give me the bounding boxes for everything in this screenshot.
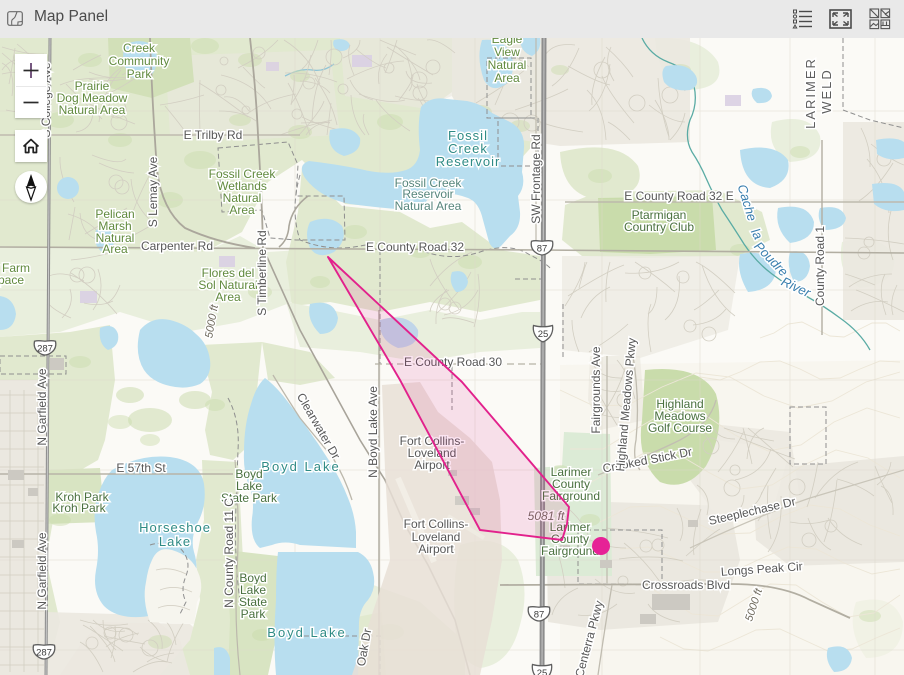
- svg-text:Crossroads Blvd: Crossroads Blvd: [642, 578, 730, 592]
- svg-text:Area: Area: [215, 290, 241, 304]
- svg-text:S Timberline Rd: S Timberline Rd: [255, 230, 269, 315]
- svg-text:87: 87: [534, 610, 545, 621]
- svg-text:LARIMER: LARIMER: [803, 57, 818, 129]
- svg-text:Natural Area: Natural Area: [59, 103, 126, 117]
- svg-text:WELD: WELD: [819, 68, 834, 114]
- svg-text:25: 25: [537, 668, 548, 675]
- svg-text:Lake: Lake: [159, 534, 191, 549]
- svg-text:N County Road 11 C: N County Road 11 C: [222, 498, 236, 608]
- svg-text:Kroh Park: Kroh Park: [52, 501, 106, 515]
- svg-text:pace: pace: [0, 273, 24, 287]
- svg-text:S Lemay Ave: S Lemay Ave: [146, 156, 160, 227]
- svg-text:Fairground: Fairground: [541, 544, 599, 558]
- svg-text:Community: Community: [109, 54, 170, 68]
- svg-text:Airport: Airport: [418, 542, 454, 556]
- svg-text:Golf Course: Golf Course: [648, 421, 712, 435]
- svg-text:Fort Collins-: Fort Collins-: [404, 517, 469, 531]
- svg-text:287: 287: [37, 344, 53, 355]
- svg-text:E County Road 32: E County Road 32: [366, 240, 464, 254]
- svg-text:Carpenter Rd: Carpenter Rd: [141, 239, 213, 253]
- svg-text:Horseshoe: Horseshoe: [139, 520, 211, 535]
- svg-text:287: 287: [36, 648, 52, 659]
- svg-text:87: 87: [537, 244, 548, 255]
- svg-text:N Garfield Ave: N Garfield Ave: [35, 368, 49, 445]
- svg-text:E 57th St: E 57th St: [116, 461, 166, 475]
- svg-text:Natural Area: Natural Area: [395, 199, 462, 213]
- svg-text:Reservoir: Reservoir: [436, 154, 501, 169]
- svg-text:View: View: [494, 45, 520, 59]
- svg-text:Fairgrounds Ave: Fairgrounds Ave: [589, 346, 603, 433]
- svg-text:Area: Area: [229, 203, 255, 217]
- svg-text:Boyd Lake: Boyd Lake: [261, 459, 340, 474]
- svg-text:Creek: Creek: [123, 41, 156, 55]
- svg-text:Boyd Lake: Boyd Lake: [267, 625, 346, 640]
- svg-text:Park: Park: [127, 67, 153, 81]
- svg-text:Country Club: Country Club: [624, 220, 694, 234]
- svg-text:25: 25: [538, 329, 549, 340]
- svg-text:SW Frontage Rd: SW Frontage Rd: [529, 134, 543, 223]
- svg-text:County Road 1: County Road 1: [813, 226, 827, 306]
- svg-text:N Garfield Ave: N Garfield Ave: [35, 532, 49, 609]
- svg-text:Park: Park: [241, 607, 267, 621]
- svg-text:E County Road 32 E: E County Road 32 E: [624, 189, 733, 203]
- svg-text:N Boyd Lake Ave: N Boyd Lake Ave: [366, 386, 380, 478]
- svg-text:Area: Area: [102, 242, 128, 256]
- svg-text:Area: Area: [494, 71, 520, 85]
- svg-text:E Trilby Rd: E Trilby Rd: [184, 128, 243, 142]
- svg-text:Natural: Natural: [488, 58, 527, 72]
